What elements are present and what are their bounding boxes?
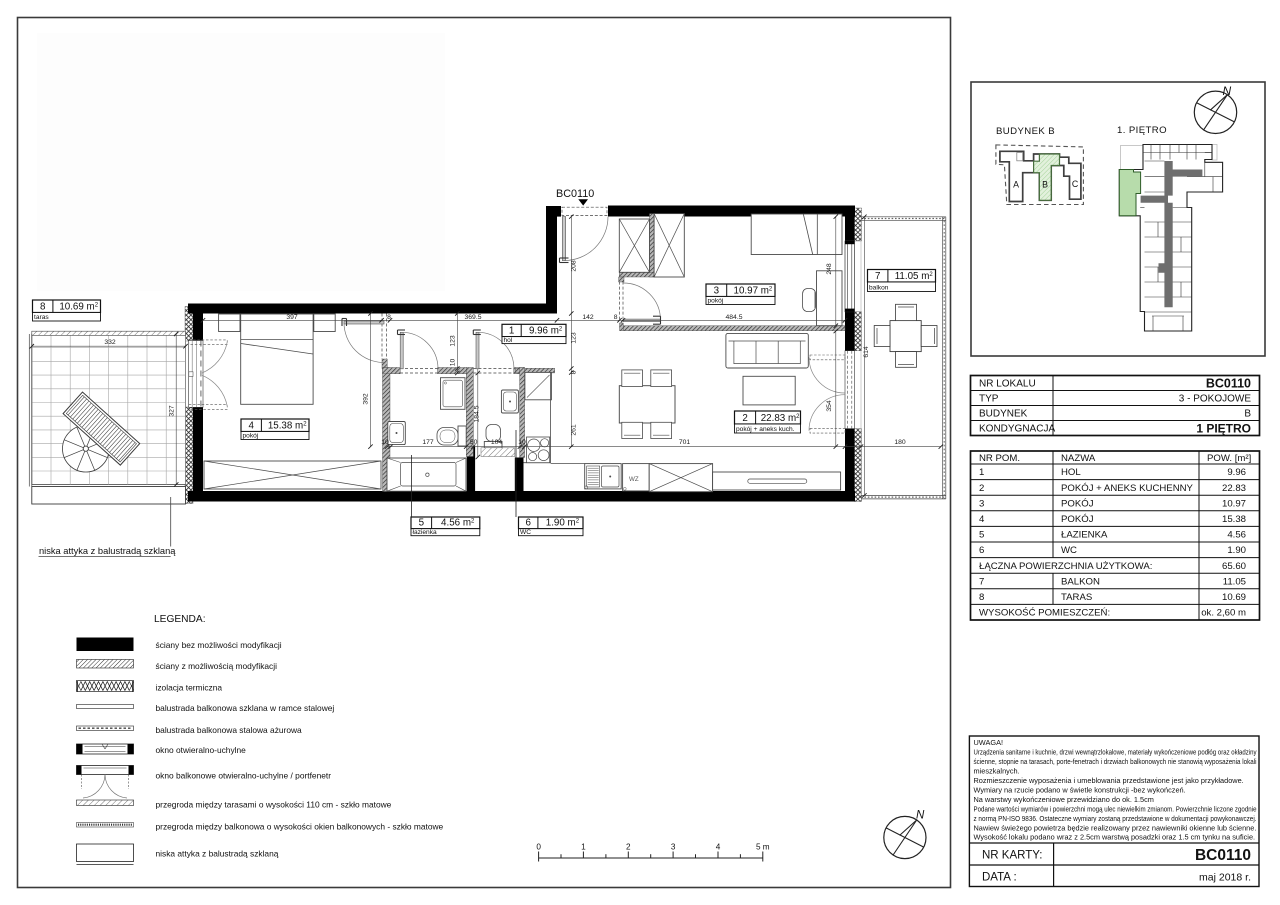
svg-text:UWAGA!: UWAGA! xyxy=(974,738,1004,747)
svg-text:N: N xyxy=(916,810,925,822)
svg-text:4.56: 4.56 xyxy=(1227,530,1246,541)
svg-text:balustrada balkonowa stalowa a: balustrada balkonowa stalowa ażurowa xyxy=(156,725,303,735)
svg-text:10: 10 xyxy=(449,359,456,367)
svg-text:7: 7 xyxy=(979,576,984,587)
svg-text:DATA :: DATA : xyxy=(982,872,1017,884)
svg-text:6: 6 xyxy=(525,518,531,529)
svg-text:4: 4 xyxy=(716,843,721,852)
svg-text:NAZWA: NAZWA xyxy=(1061,453,1096,464)
svg-text:701: 701 xyxy=(679,439,691,446)
svg-text:4.56 m2: 4.56 m2 xyxy=(441,518,475,529)
svg-text:przegroda między tarasami o wy: przegroda między tarasami o wysokości 11… xyxy=(156,800,392,810)
svg-text:8: 8 xyxy=(979,592,984,603)
svg-text:okno balkonowe otwieralno-uchy: okno balkonowe otwieralno-uchylne / port… xyxy=(156,771,332,781)
svg-text:484.5: 484.5 xyxy=(725,314,742,321)
svg-text:ŁAZIENKA: ŁAZIENKA xyxy=(1061,530,1108,541)
svg-text:614: 614 xyxy=(863,346,870,358)
svg-text:N: N xyxy=(1223,84,1232,98)
svg-text:10.97 m2: 10.97 m2 xyxy=(734,286,773,297)
svg-text:LEGENDA:: LEGENDA: xyxy=(154,614,206,625)
svg-text:8: 8 xyxy=(387,314,391,321)
svg-text:balustrada balkonowa szklana w: balustrada balkonowa szklana w ramce sta… xyxy=(156,703,335,713)
svg-text:WYSOKOŚĆ POMIESZCZEŃ:: WYSOKOŚĆ POMIESZCZEŃ: xyxy=(979,607,1110,619)
svg-text:pokój: pokój xyxy=(243,433,259,440)
svg-text:C: C xyxy=(1072,179,1079,189)
svg-text:397: 397 xyxy=(286,314,298,321)
svg-text:327: 327 xyxy=(168,405,175,417)
svg-text:niska attyka z balustradą szkl: niska attyka z balustradą szklaną xyxy=(156,849,279,859)
svg-text:2: 2 xyxy=(979,483,984,494)
svg-text:Na warstwy wykończeniowe przew: Na warstwy wykończeniowe przewidziano do… xyxy=(974,795,1154,804)
svg-text:ściany bez możliwości modyfika: ściany bez możliwości modyfikacji xyxy=(156,640,282,650)
svg-text:10: 10 xyxy=(381,439,389,446)
svg-text:10.69: 10.69 xyxy=(1222,592,1246,603)
svg-text:142: 142 xyxy=(582,314,594,321)
svg-text:9.96: 9.96 xyxy=(1227,467,1246,478)
svg-text:B: B xyxy=(1244,409,1251,420)
svg-text:11.05 m2: 11.05 m2 xyxy=(895,271,934,282)
svg-text:Wymiary na rzucie podano w świ: Wymiary na rzucie podano w świetle konst… xyxy=(974,786,1186,795)
svg-text:4: 4 xyxy=(248,421,254,432)
svg-text:1: 1 xyxy=(581,843,586,852)
svg-text:392: 392 xyxy=(363,393,370,405)
svg-text:BALKON: BALKON xyxy=(1061,576,1100,587)
svg-text:177: 177 xyxy=(422,439,434,446)
svg-text:123: 123 xyxy=(449,335,456,347)
svg-text:0: 0 xyxy=(536,843,541,852)
svg-text:8: 8 xyxy=(570,370,577,374)
svg-text:3 - POKOJOWE: 3 - POKOJOWE xyxy=(1179,394,1252,405)
svg-text:104: 104 xyxy=(491,439,503,446)
svg-text:taras: taras xyxy=(34,314,49,321)
svg-text:1.90: 1.90 xyxy=(1227,545,1246,556)
svg-text:POKÓJ: POKÓJ xyxy=(1061,514,1094,525)
svg-text:NR KARTY:: NR KARTY: xyxy=(982,850,1043,862)
svg-text:ŁĄCZNA POWIERZCHNIA UŻYTKOWA:: ŁĄCZNA POWIERZCHNIA UŻYTKOWA: xyxy=(979,561,1152,572)
svg-text:izolacja termiczna: izolacja termiczna xyxy=(156,683,223,693)
svg-text:11.05: 11.05 xyxy=(1223,576,1246,587)
svg-text:1 PIĘTRO: 1 PIĘTRO xyxy=(1196,422,1251,436)
svg-text:BC0110: BC0110 xyxy=(1195,847,1251,864)
svg-text:1.90 m2: 1.90 m2 xyxy=(546,518,580,529)
svg-text:4: 4 xyxy=(979,514,985,525)
svg-text:22.83: 22.83 xyxy=(1222,483,1246,494)
svg-text:5 m: 5 m xyxy=(756,843,770,852)
svg-text:65.60: 65.60 xyxy=(1222,561,1246,572)
svg-text:3: 3 xyxy=(671,843,676,852)
svg-text:BUDYNEK B: BUDYNEK B xyxy=(996,126,1055,137)
svg-text:A: A xyxy=(1013,180,1019,190)
svg-text:123: 123 xyxy=(570,332,577,344)
svg-text:BC0110: BC0110 xyxy=(556,188,594,200)
svg-text:Wysokość lokalu podano wraz z: Wysokość lokalu podano wraz z 2.5cm wars… xyxy=(974,833,1256,842)
svg-text:pokój + aneks kuch.: pokój + aneks kuch. xyxy=(736,426,795,433)
svg-text:6: 6 xyxy=(979,545,984,556)
svg-text:Podane wartości wymiarów i pow: Podane wartości wymiarów i powierzchni m… xyxy=(974,804,1257,813)
svg-text:WC: WC xyxy=(520,529,531,536)
svg-text:1: 1 xyxy=(979,467,984,478)
svg-text:WZ: WZ xyxy=(629,476,639,483)
svg-text:8: 8 xyxy=(614,314,618,321)
svg-text:KONDYGNACJA: KONDYGNACJA xyxy=(979,424,1055,435)
svg-text:208: 208 xyxy=(570,260,577,272)
svg-text:NR LOKALU: NR LOKALU xyxy=(979,379,1036,390)
svg-text:332: 332 xyxy=(104,339,116,346)
svg-text:ściany z możliwością modyfikac: ściany z możliwością modyfikacji xyxy=(156,661,278,671)
svg-text:pokój: pokój xyxy=(708,298,724,305)
svg-text:B: B xyxy=(1042,180,1048,190)
svg-text:9.96 m2: 9.96 m2 xyxy=(529,326,563,337)
svg-text:BC0110: BC0110 xyxy=(1206,377,1251,391)
svg-text:2: 2 xyxy=(742,413,747,424)
svg-text:Urządzenia sanitarne i kuchnie: Urządzenia sanitarne i kuchnie, drzwi we… xyxy=(974,748,1257,757)
svg-text:ścienne, stopnie na tarasach,: ścienne, stopnie na tarasach, porte-fene… xyxy=(974,757,1257,766)
svg-text:ok. 2,60 m: ok. 2,60 m xyxy=(1201,608,1246,619)
svg-text:Nawiew świeżego powietrza będz: Nawiew świeżego powietrza będzie realizo… xyxy=(974,823,1257,832)
svg-text:TYP: TYP xyxy=(979,394,999,405)
svg-text:5: 5 xyxy=(419,518,425,529)
svg-text:369.5: 369.5 xyxy=(464,314,481,321)
svg-text:z normą PN-ISO 9836. Ostateczn: z normą PN-ISO 9836. Ostateczne wymiary … xyxy=(974,814,1257,823)
svg-text:7: 7 xyxy=(875,271,880,282)
svg-text:BUDYNEK: BUDYNEK xyxy=(979,409,1028,420)
svg-text:184.5: 184.5 xyxy=(474,405,481,422)
svg-text:8: 8 xyxy=(40,302,46,313)
svg-text:POKÓJ: POKÓJ xyxy=(1061,498,1094,509)
svg-text:łazienka: łazienka xyxy=(413,529,438,536)
svg-text:1. PIĘTRO: 1. PIĘTRO xyxy=(1117,125,1167,136)
svg-text:1: 1 xyxy=(509,326,514,337)
svg-text:10: 10 xyxy=(518,439,526,446)
svg-text:okno otwieralno-uchylne: okno otwieralno-uchylne xyxy=(156,745,247,755)
svg-text:3: 3 xyxy=(979,498,984,509)
svg-text:354: 354 xyxy=(826,400,833,412)
svg-text:180: 180 xyxy=(894,439,906,446)
svg-text:mieszkalnych.: mieszkalnych. xyxy=(974,767,1020,776)
svg-text:10.97: 10.97 xyxy=(1222,498,1246,509)
svg-text:WC: WC xyxy=(1061,545,1077,556)
svg-text:261: 261 xyxy=(570,424,577,436)
svg-text:TARAS: TARAS xyxy=(1061,592,1092,603)
svg-text:2: 2 xyxy=(626,843,631,852)
svg-text:balkon: balkon xyxy=(869,285,889,292)
svg-text:maj 2018 r.: maj 2018 r. xyxy=(1199,872,1251,884)
svg-text:15.38 m2: 15.38 m2 xyxy=(268,421,307,432)
svg-text:POKÓJ + ANEKS KUCHENNY: POKÓJ + ANEKS KUCHENNY xyxy=(1061,483,1194,494)
svg-text:niska attyka z balustradą szkl: niska attyka z balustradą szklaną xyxy=(39,546,176,556)
svg-text:248: 248 xyxy=(826,263,833,275)
svg-text:hol: hol xyxy=(504,337,513,344)
svg-text:10.69 m2: 10.69 m2 xyxy=(59,302,98,313)
svg-text:50: 50 xyxy=(470,439,478,446)
svg-text:3: 3 xyxy=(714,286,720,297)
svg-text:HOL: HOL xyxy=(1061,467,1081,478)
svg-text:Rozmieszczenie wyposażenia i u: Rozmieszczenie wyposażenia i umeblowania… xyxy=(974,776,1244,785)
svg-text:NR POM.: NR POM. xyxy=(979,453,1020,464)
svg-text:przegroda między balkonowa o w: przegroda między balkonowa o wysokości o… xyxy=(156,822,444,832)
svg-text:15.38: 15.38 xyxy=(1222,514,1246,525)
svg-text:22.83 m2: 22.83 m2 xyxy=(761,413,800,424)
svg-text:POW. [m²]: POW. [m²] xyxy=(1207,453,1251,464)
svg-text:5: 5 xyxy=(979,530,984,541)
